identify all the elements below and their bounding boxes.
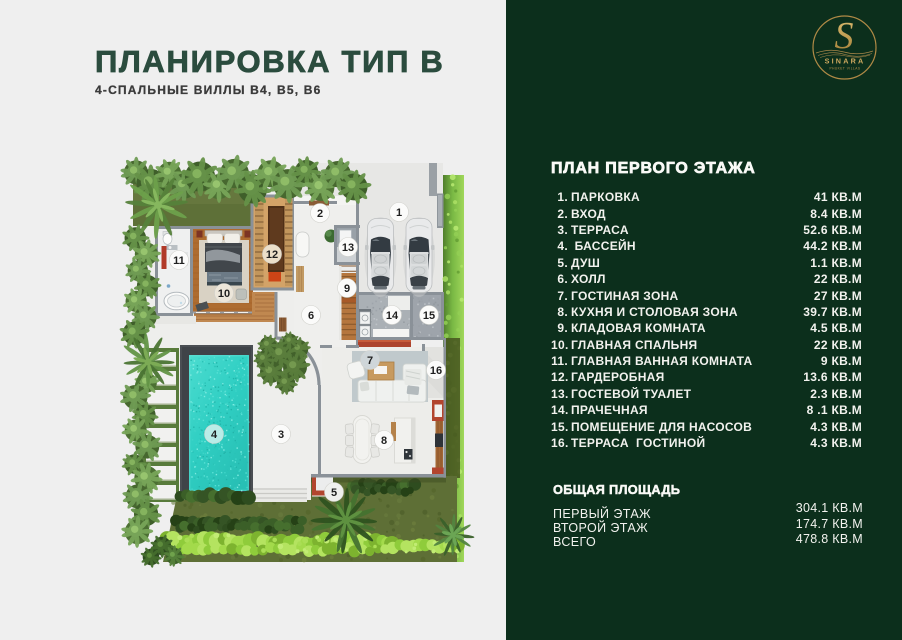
svg-text:PHUKET VILLAS: PHUKET VILLAS (829, 67, 860, 71)
svg-text:9: 9 (344, 283, 350, 295)
svg-text:13: 13 (342, 242, 354, 254)
svg-text:16: 16 (430, 365, 442, 377)
svg-text:8: 8 (381, 435, 387, 447)
svg-text:15: 15 (423, 310, 435, 322)
svg-text:SINARA: SINARA (825, 57, 866, 66)
svg-text:1: 1 (396, 207, 402, 219)
svg-text:11: 11 (173, 255, 185, 267)
svg-text:6: 6 (308, 310, 314, 322)
svg-text:3: 3 (278, 429, 284, 441)
svg-text:10: 10 (218, 288, 230, 300)
svg-text:14: 14 (386, 310, 399, 322)
svg-text:5: 5 (331, 487, 337, 499)
svg-text:12: 12 (266, 249, 278, 261)
svg-text:7: 7 (367, 355, 373, 367)
svg-text:2: 2 (317, 208, 323, 220)
svg-text:4: 4 (211, 429, 218, 441)
